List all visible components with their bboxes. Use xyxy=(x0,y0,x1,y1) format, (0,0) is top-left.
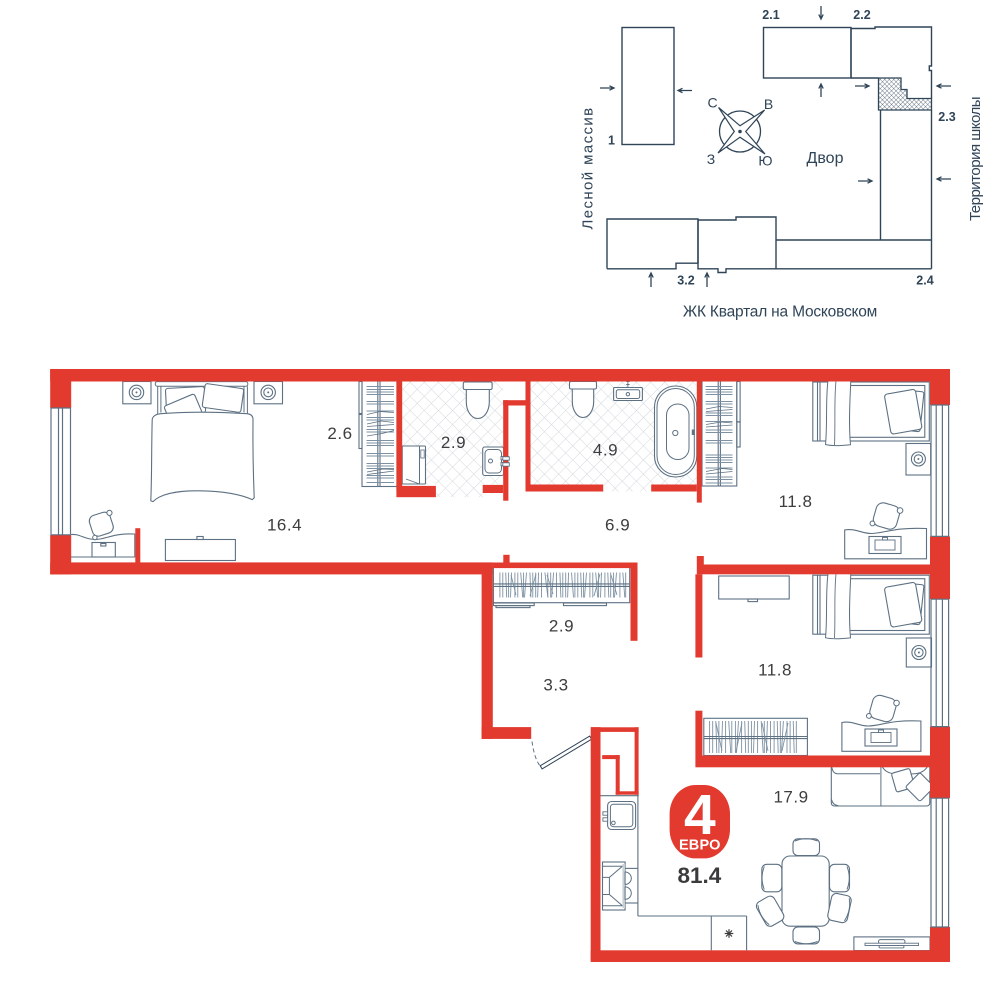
svg-text:2.9: 2.9 xyxy=(441,433,466,452)
svg-text:2.3: 2.3 xyxy=(938,110,955,124)
svg-text:ЕВРО: ЕВРО xyxy=(679,838,721,854)
svg-text:Ю: Ю xyxy=(758,153,772,169)
svg-text:11.8: 11.8 xyxy=(779,492,813,511)
svg-text:2.1: 2.1 xyxy=(762,8,779,22)
svg-text:Территория школы: Территория школы xyxy=(967,97,984,221)
svg-text:1: 1 xyxy=(608,134,615,148)
svg-text:81.4: 81.4 xyxy=(678,863,722,888)
svg-text:4.9: 4.9 xyxy=(593,441,618,460)
svg-text:З: З xyxy=(707,151,715,167)
svg-text:Лесной массив: Лесной массив xyxy=(580,106,597,229)
svg-text:В: В xyxy=(764,96,773,112)
svg-text:2.9: 2.9 xyxy=(549,617,574,636)
svg-text:2.2: 2.2 xyxy=(853,8,870,22)
svg-text:ЖК Квартал на Московском: ЖК Квартал на Московском xyxy=(683,304,877,321)
svg-text:2.6: 2.6 xyxy=(327,424,352,443)
svg-text:11.8: 11.8 xyxy=(758,661,792,680)
svg-text:3.3: 3.3 xyxy=(543,676,568,695)
svg-text:2.4: 2.4 xyxy=(916,274,933,288)
svg-text:17.9: 17.9 xyxy=(773,788,808,807)
svg-text:3.2: 3.2 xyxy=(677,274,694,288)
svg-text:Двор: Двор xyxy=(807,150,844,167)
svg-text:6.9: 6.9 xyxy=(605,516,630,535)
svg-text:16.4: 16.4 xyxy=(267,516,302,535)
svg-text:С: С xyxy=(707,95,717,111)
